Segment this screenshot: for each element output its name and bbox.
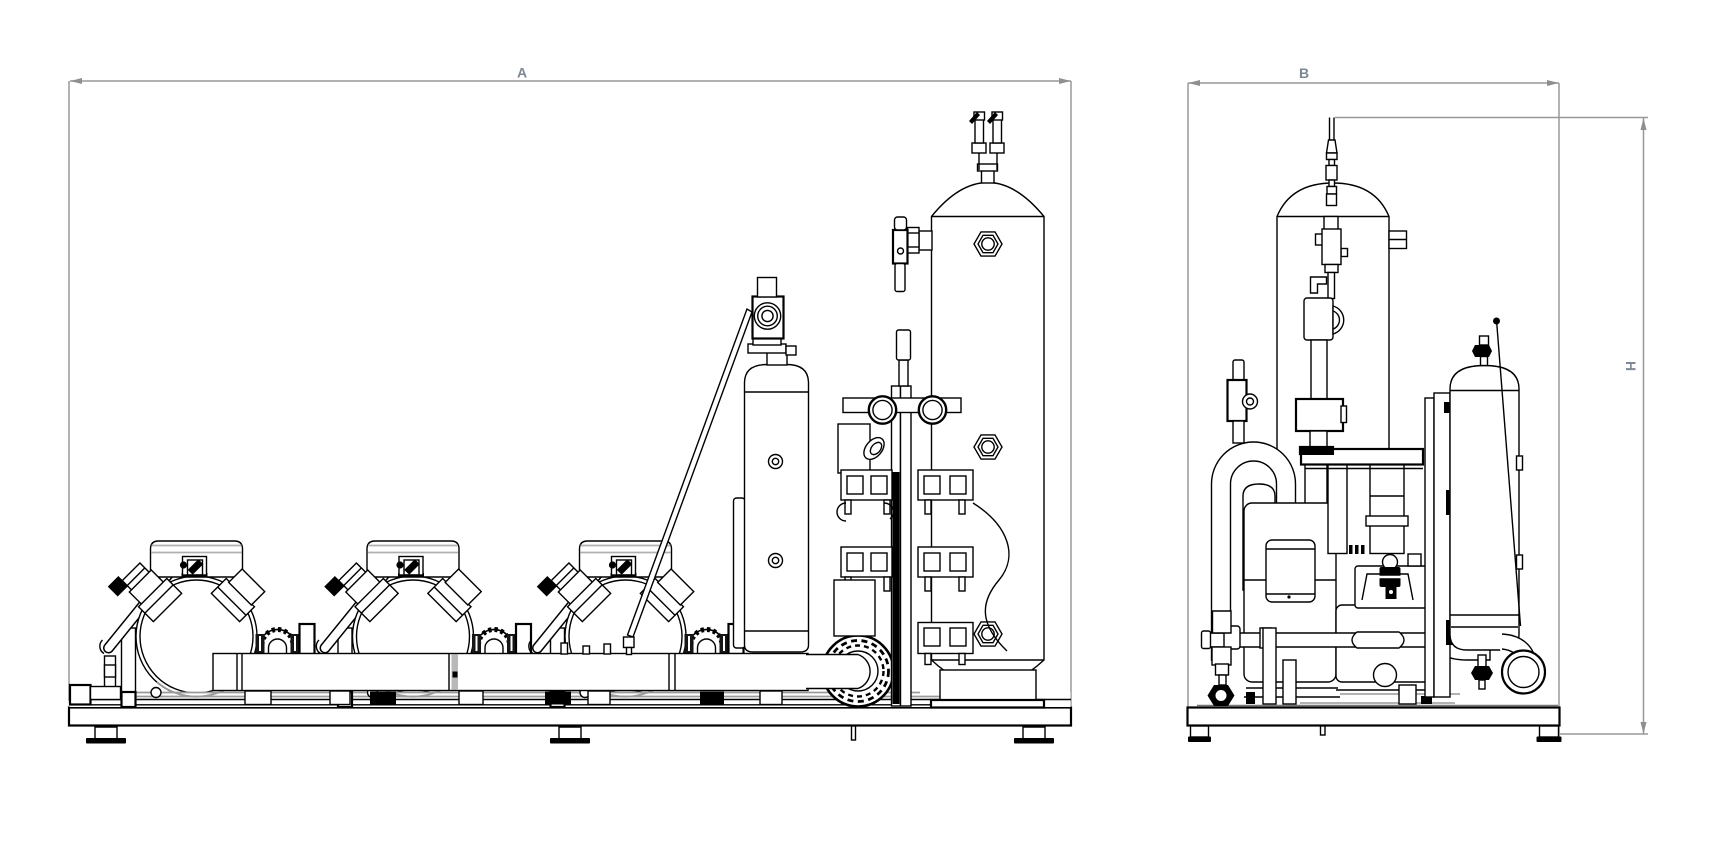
svg-text:H: H	[1623, 361, 1639, 371]
svg-text:A: A	[517, 65, 527, 81]
svg-text:B: B	[1299, 65, 1309, 81]
